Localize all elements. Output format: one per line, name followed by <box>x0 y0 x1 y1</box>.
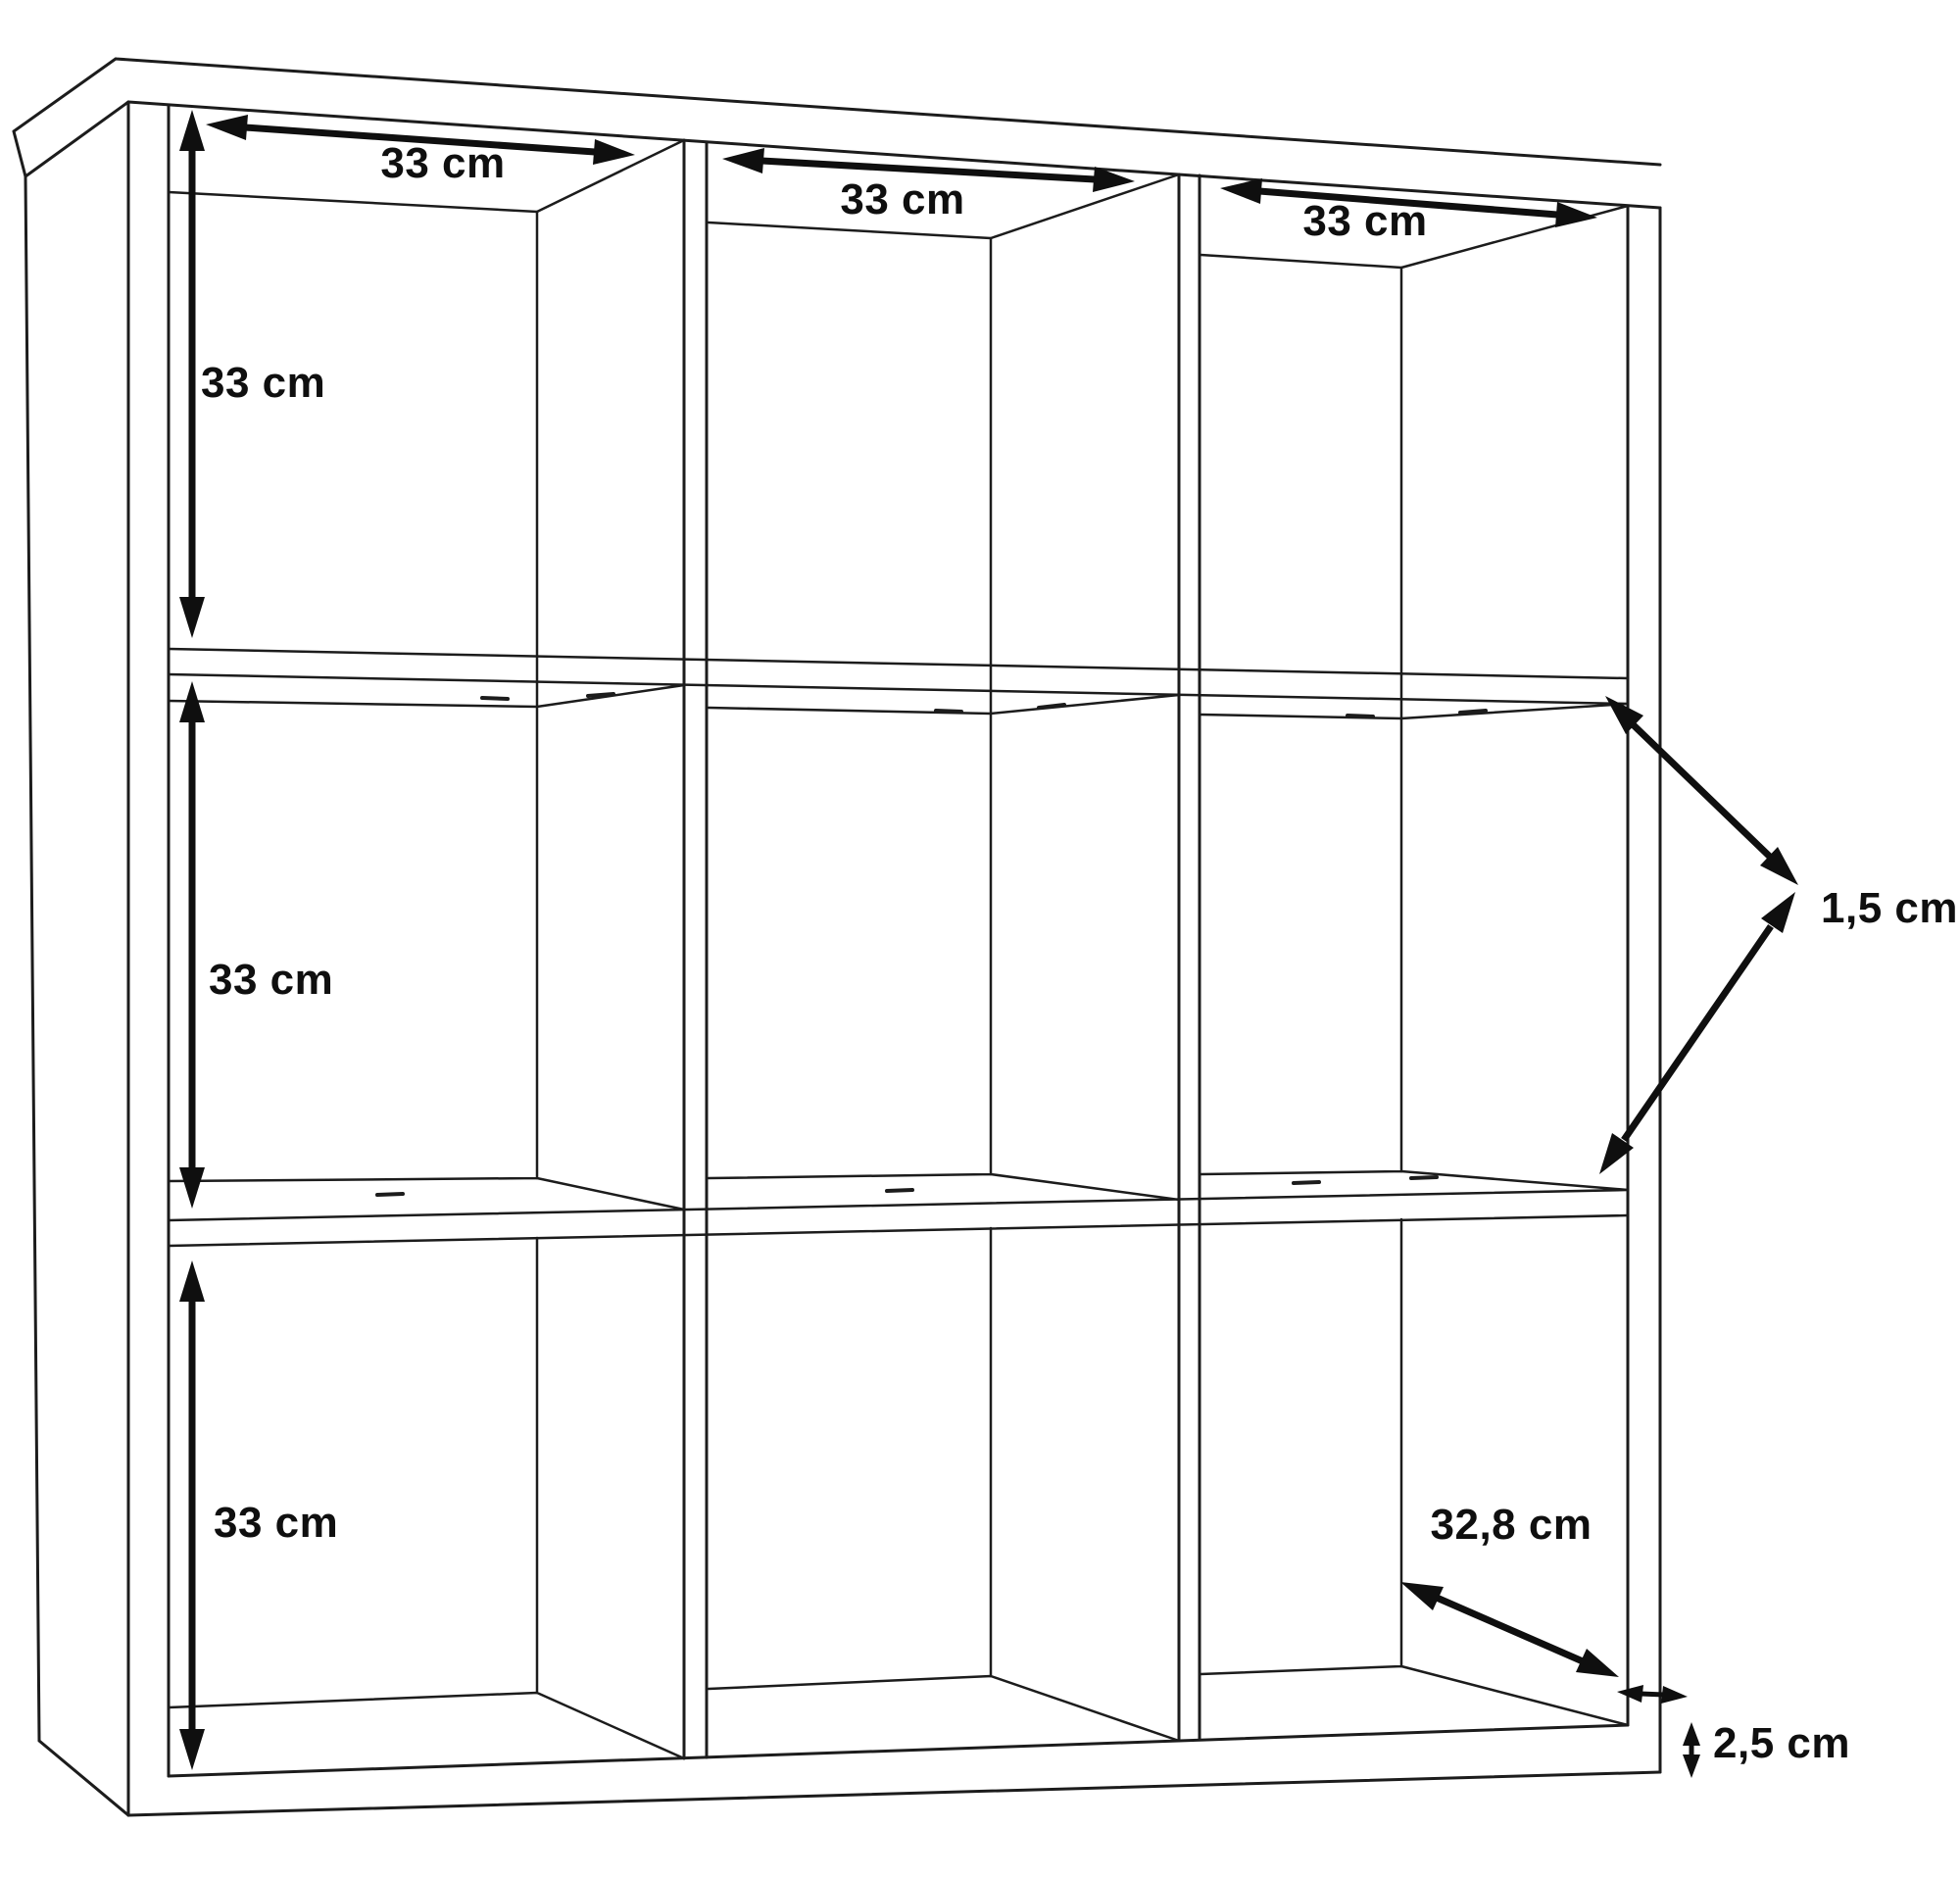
dimension-label-panel-thickness: 2,5 cm <box>1713 1719 1850 1767</box>
bottom-slab <box>128 1725 1660 1815</box>
dimension-arrow-inner-depth <box>1400 1582 1619 1677</box>
dimension-label-row3-height: 33 cm <box>214 1499 338 1547</box>
shelf-lower <box>169 1171 1628 1246</box>
dimension-label-col2-width: 33 cm <box>840 175 964 223</box>
dimension-label-row1-height: 33 cm <box>201 359 325 407</box>
dimension-arrow-shelf-thickness-upper <box>1605 696 1798 885</box>
dimension-label-shelf-thickness: 1,5 cm <box>1821 884 1958 932</box>
cube-shelf-diagram: 33 cm 33 cm 33 cm 33 cm 33 cm 33 cm 1,5 … <box>0 0 1960 1878</box>
dimension-arrow-panel-thickness-vertical <box>1683 1722 1700 1778</box>
dimension-label-inner-depth: 32,8 cm <box>1431 1501 1592 1549</box>
floor-back-edges <box>169 1666 1628 1758</box>
dimension-label-col3-width: 33 cm <box>1302 197 1427 245</box>
dimension-label-row2-height: 33 cm <box>209 956 333 1004</box>
back-panel-junctions <box>537 212 1401 1693</box>
dimension-label-col1-width: 33 cm <box>380 139 505 187</box>
dimension-arrow-row3-height <box>179 1260 205 1770</box>
dimension-arrow-row2-height <box>179 681 205 1209</box>
left-side-panel <box>25 102 169 1815</box>
top-slab <box>14 59 1660 208</box>
shelf-upper <box>169 649 1628 718</box>
shelf-pin-holes <box>377 694 1486 1195</box>
diagram-canvas: 33 cm 33 cm 33 cm 33 cm 33 cm 33 cm 1,5 … <box>0 0 1960 1878</box>
cabinet-outline <box>14 59 1660 1815</box>
